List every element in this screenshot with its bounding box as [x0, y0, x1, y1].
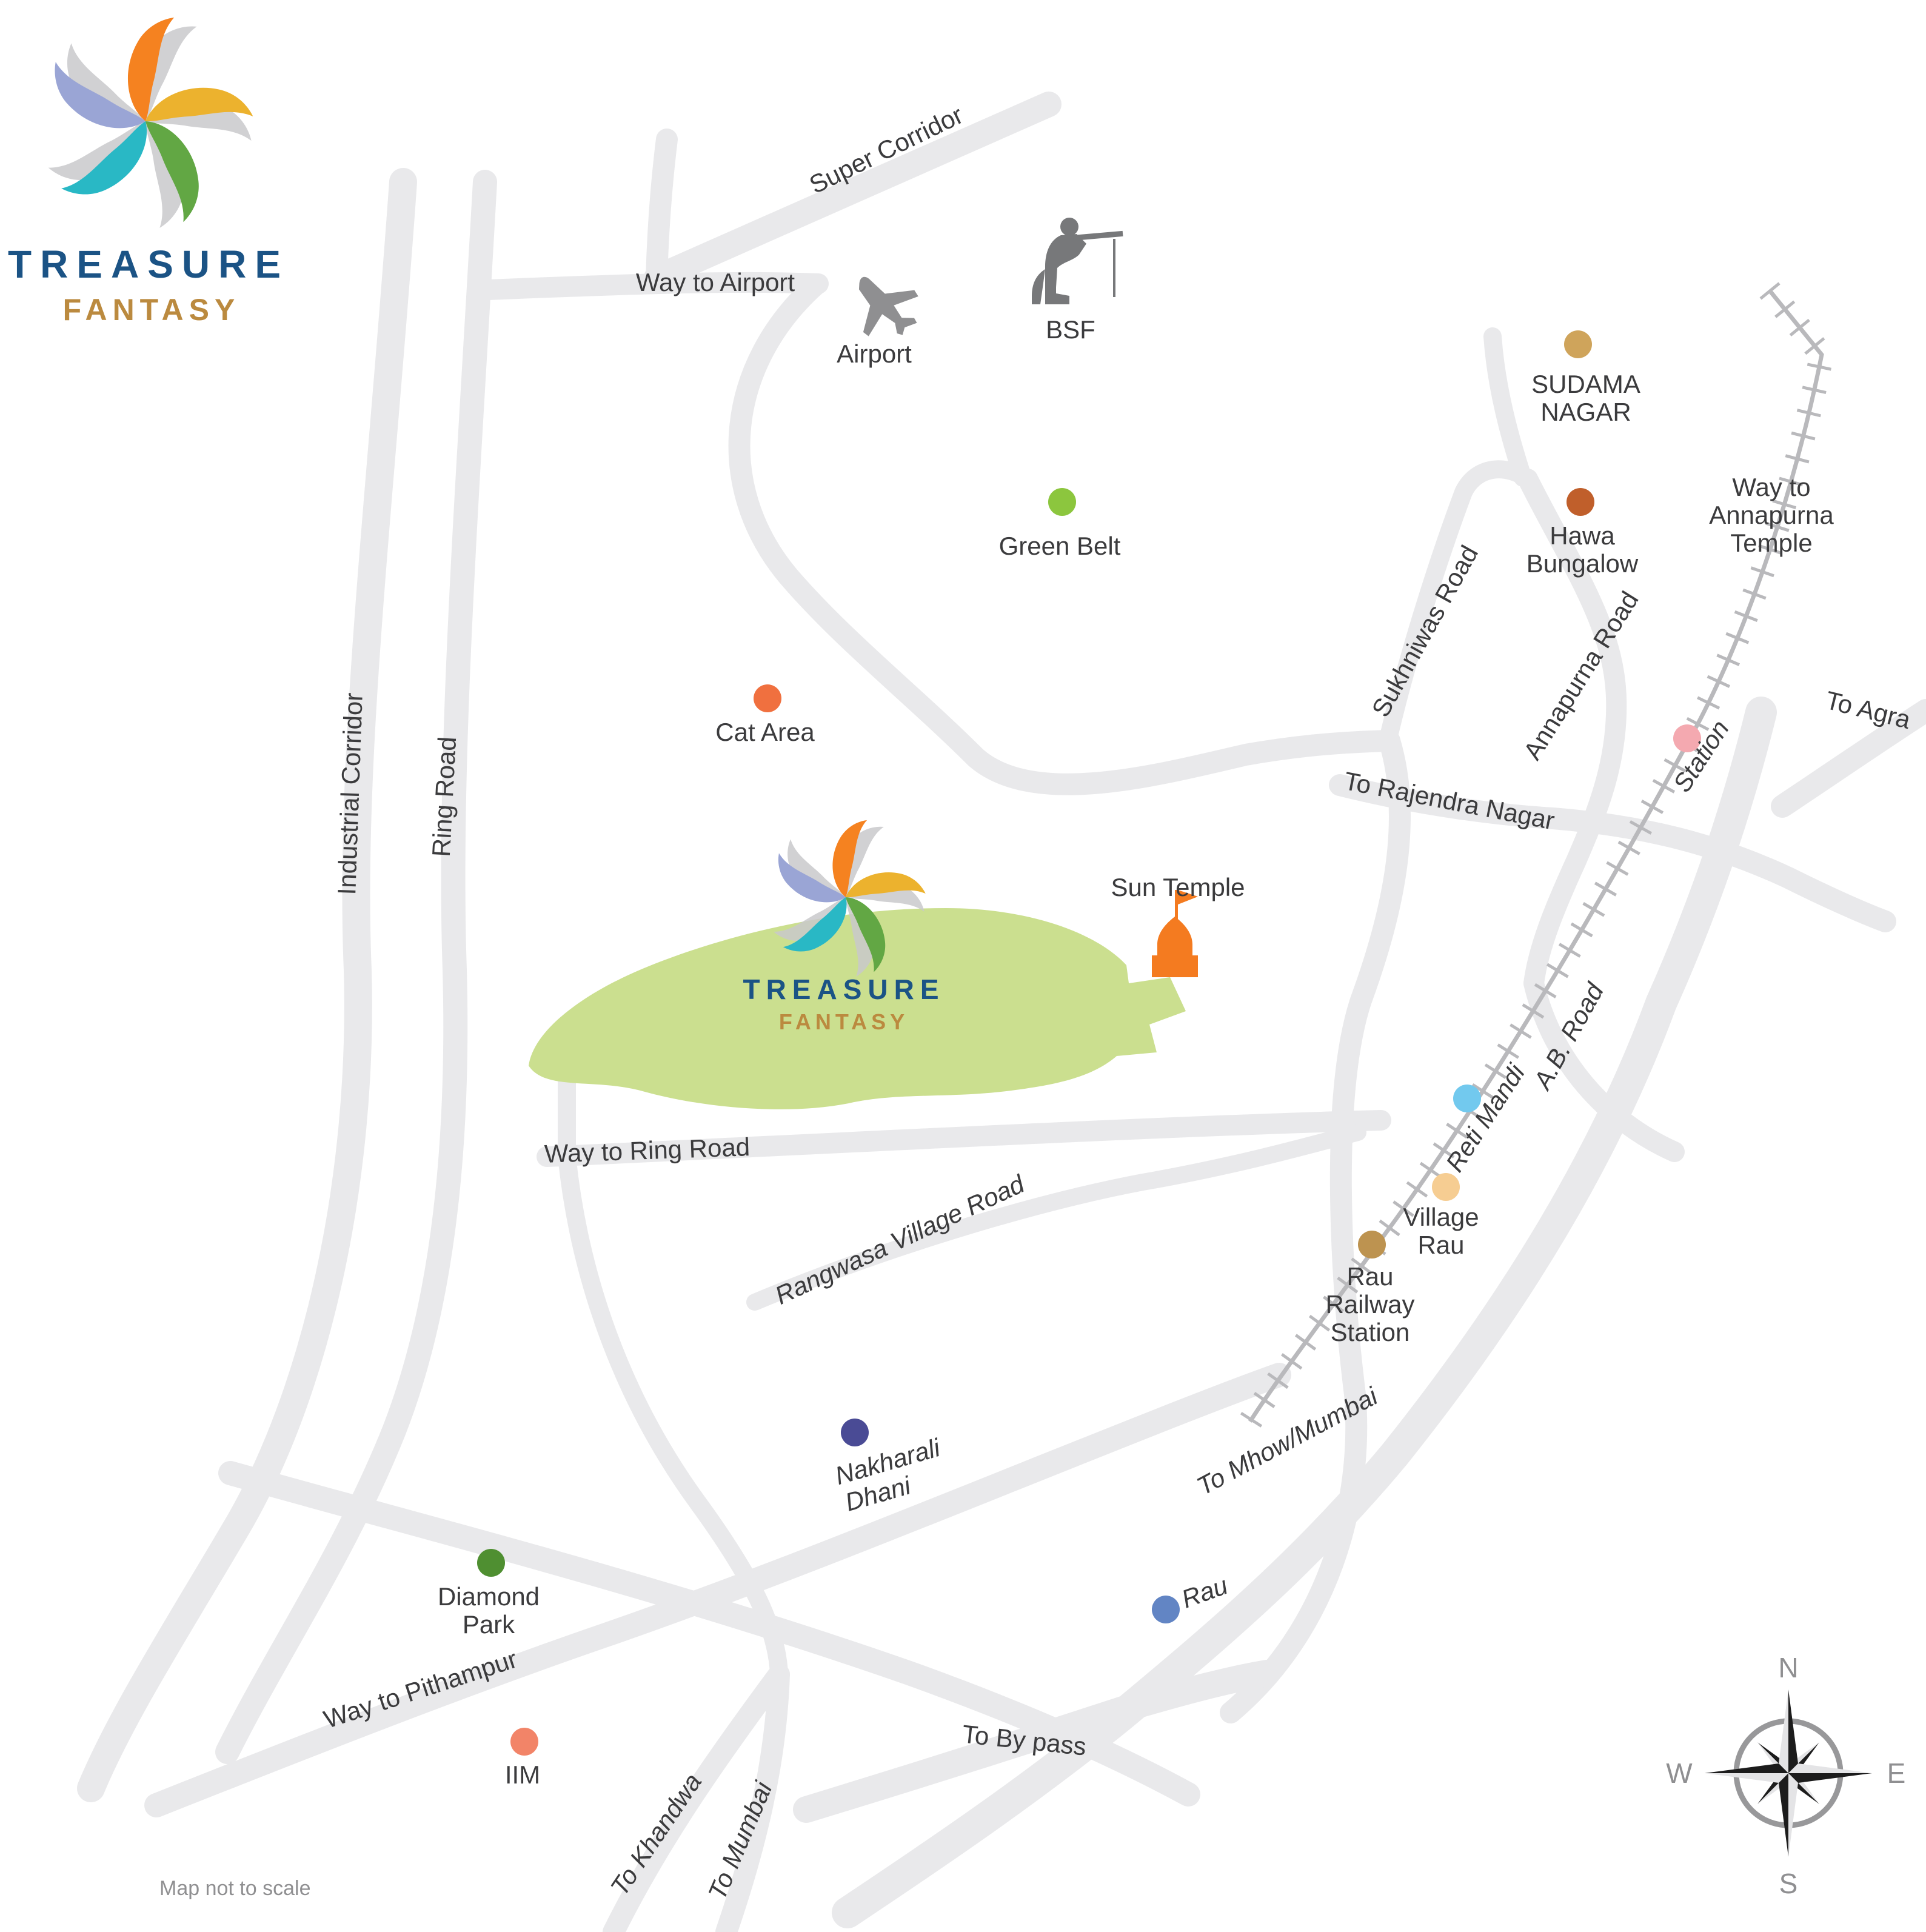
- label-way-to-airport: Way to Airport: [636, 268, 795, 296]
- compass-rose-icon: N S E W: [1666, 1652, 1905, 1899]
- way-to-annapurna-temple-label-2: Annapurna: [1709, 501, 1834, 529]
- map-svg: TREASURE FANTASY TREASURE FANTASY Super …: [0, 0, 1926, 1932]
- hawa-bungalow-label-1: Hawa: [1550, 521, 1615, 550]
- road-top-stub: [657, 139, 667, 278]
- green-belt-dot: [1048, 488, 1076, 516]
- compass-west-label: W: [1666, 1757, 1693, 1789]
- nakharali-dhani-dot: [841, 1419, 869, 1446]
- brand-logo: TREASURE FANTASY: [8, 0, 289, 327]
- label-way-to-pithampur: Way to Pithampur: [320, 1645, 521, 1734]
- brand-logo-swirl: [21, 0, 273, 244]
- rau-railway-station-label-1: Rau: [1346, 1262, 1393, 1291]
- green-belt-label: Green Belt: [999, 532, 1121, 560]
- map-disclaimer: Map not to scale: [159, 1877, 310, 1900]
- village-rau-label-1: Village: [1403, 1203, 1479, 1231]
- rau-label: Rau: [1178, 1571, 1231, 1614]
- village-rau-label-2: Rau: [1417, 1231, 1464, 1259]
- diamond-park-label-2: Park: [463, 1610, 515, 1639]
- sudama-nagar-dot: [1564, 330, 1592, 358]
- village-rau-dot: [1432, 1173, 1460, 1201]
- temple-icon: [1152, 890, 1198, 977]
- diamond-park-label-1: Diamond: [438, 1582, 540, 1611]
- hawa-bungalow-label-2: Bungalow: [1526, 549, 1639, 578]
- compass-south-label: S: [1779, 1868, 1798, 1899]
- road-sukhniwas: [1388, 469, 1526, 738]
- site-brand-treasure: TREASURE: [743, 974, 945, 1005]
- location-map: TREASURE FANTASY TREASURE FANTASY Super …: [0, 0, 1926, 1932]
- diamond-park-dot: [477, 1549, 505, 1577]
- soldier-icon: [1032, 218, 1123, 304]
- way-to-annapurna-temple-label-1: Way to: [1732, 473, 1810, 501]
- cat-area-label: Cat Area: [715, 718, 815, 746]
- hawa-bungalow-dot: [1567, 488, 1594, 516]
- rau-railway-station-dot: [1358, 1231, 1386, 1258]
- project-site: TREASURE FANTASY: [529, 804, 1186, 1109]
- road-hawa-stub: [1493, 336, 1523, 478]
- way-to-annapurna-temple-label-3: Temple: [1730, 529, 1812, 557]
- road-industrial-corridor: [91, 182, 403, 1788]
- sudama-nagar-label-1: SUDAMA: [1531, 370, 1640, 398]
- reti-mandi-label: Reti Mandi: [1440, 1058, 1531, 1177]
- airport-landmark: Airport: [835, 257, 932, 368]
- label-sukhniwas-road: Sukhniwas Road: [1366, 541, 1483, 721]
- label-to-agra: To Agra: [1823, 686, 1914, 734]
- bsf-label: BSF: [1046, 315, 1095, 344]
- sun-temple-landmark: Sun Temple: [1111, 873, 1245, 977]
- label-annapurna-road: Annapurna Road: [1518, 586, 1644, 764]
- rau-railway-station-label-2: Railway: [1325, 1290, 1414, 1319]
- airport-label: Airport: [837, 339, 912, 368]
- iim-label: IIM: [505, 1760, 540, 1789]
- rau-dot: [1152, 1596, 1180, 1623]
- label-to-khandwa: To Khandwa: [605, 1768, 707, 1901]
- compass-north-label: N: [1778, 1652, 1798, 1683]
- road-super-corridor: [657, 104, 1049, 278]
- brand-treasure: TREASURE: [8, 242, 289, 286]
- brand-fantasy: FANTASY: [63, 293, 241, 327]
- compass-east-label: E: [1887, 1757, 1906, 1789]
- road-sun-temple-vertical: [1231, 741, 1400, 1713]
- sudama-nagar-label-2: NAGAR: [1540, 398, 1631, 426]
- sun-temple-label: Sun Temple: [1111, 873, 1245, 901]
- label-rangwasa-village-road: Rangwasa Village Road: [771, 1169, 1029, 1309]
- compass-major-points: [1705, 1690, 1872, 1857]
- bsf-landmark: BSF: [1032, 218, 1123, 344]
- iim-dot: [510, 1728, 538, 1756]
- site-brand-fantasy: FANTASY: [779, 1009, 909, 1034]
- cat-area-dot: [754, 684, 781, 712]
- rau-railway-station-label-3: Station: [1331, 1318, 1410, 1346]
